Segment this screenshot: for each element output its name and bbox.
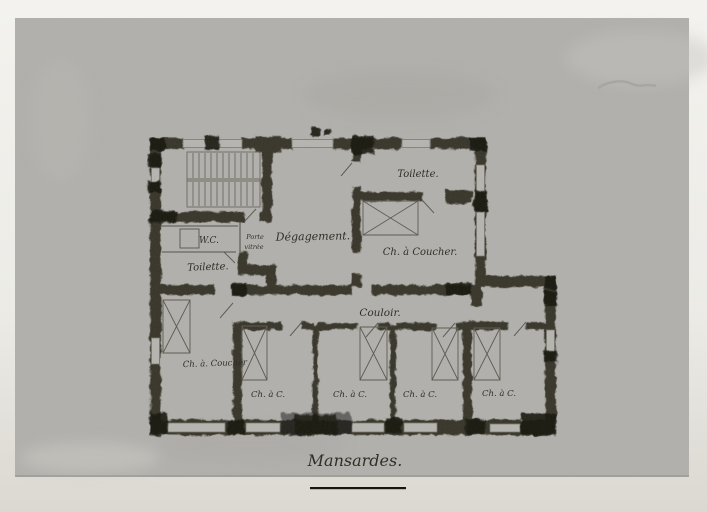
floorplan-drawing: W.C. Porte vitrée Toilette. Dégagement. … xyxy=(0,0,707,512)
title-underline xyxy=(310,487,406,489)
archival-floorplan-photograph: W.C. Porte vitrée Toilette. Dégagement. … xyxy=(0,0,707,512)
photo-grain-overlay xyxy=(15,18,689,477)
